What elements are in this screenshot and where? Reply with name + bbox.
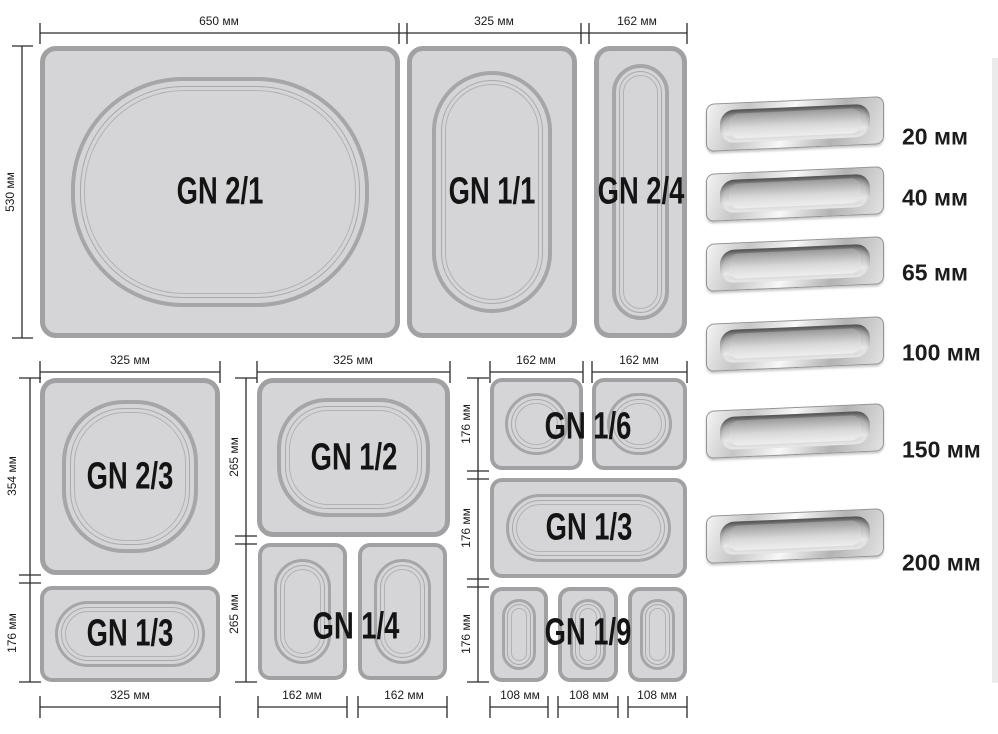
- pan-label-gn-2-3: GN 2/3: [87, 455, 174, 498]
- pan-rim: [706, 508, 884, 564]
- pan-label-gn-1-6: GN 1/6: [545, 406, 632, 449]
- pan-rim: [706, 96, 884, 152]
- pan-label-gn-1-2: GN 1/2: [310, 436, 397, 479]
- dim-label-354mm: 354 мм: [5, 456, 19, 496]
- depth-label-40mm: 40 мм: [902, 185, 968, 212]
- pan-label-gn-1-3: GN 1/3: [87, 613, 174, 656]
- pan-gn-1-3-left: GN 1/3: [40, 586, 220, 682]
- pan-opening-floor: [729, 248, 861, 279]
- pan-gn-2-4: GN 2/4: [594, 46, 687, 338]
- pan-opening: [720, 411, 870, 451]
- dim-label-530mm: 530 мм: [3, 172, 17, 212]
- pan-rim: [706, 236, 884, 292]
- pan-opening: [720, 244, 870, 284]
- pan-gn-1-1: GN 1/1: [407, 46, 577, 338]
- depth-label-150mm: 150 мм: [902, 437, 981, 464]
- pan-opening: [720, 174, 870, 214]
- pan-label-gn-1-4: GN 1/4: [313, 606, 400, 649]
- pan-opening-floor: [729, 108, 861, 139]
- photo-pan-100mm: [706, 320, 884, 403]
- depth-label-20mm: 20 мм: [902, 124, 968, 151]
- pan-rim: [706, 316, 884, 372]
- pan-label-gn-2-1: GN 2/1: [177, 171, 264, 214]
- pan-opening: [720, 516, 870, 556]
- pan-opening-floor: [729, 328, 861, 359]
- depth-label-100mm: 100 мм: [902, 340, 981, 367]
- pan-gn-2-1: GN 2/1: [40, 46, 400, 338]
- pan-label-gn-1-1: GN 1/1: [449, 171, 536, 214]
- dim-label-325mm-top: 325 мм: [474, 14, 514, 28]
- pan-gn-1-9-a: [490, 587, 548, 682]
- dim-label-108mm-b: 108 мм: [569, 688, 609, 702]
- depth-label-200mm: 200 мм: [902, 550, 981, 577]
- pan-opening: [720, 104, 870, 144]
- dim-label-162mm-col2-a: 162 мм: [282, 688, 322, 702]
- dim-label-108mm-c: 108 мм: [637, 688, 677, 702]
- dim-label-162mm-col2-b: 162 мм: [384, 688, 424, 702]
- pan-gn-2-3: GN 2/3: [40, 378, 220, 575]
- photo-pan-200mm: [706, 512, 884, 627]
- dim-label-265mm-a: 265 мм: [227, 437, 241, 477]
- dim-label-325mm-col1-bottom: 325 мм: [110, 688, 150, 702]
- pan-inner-line: [511, 608, 527, 661]
- pan-inner-line: [649, 608, 666, 661]
- pan-gn-1-2: GN 1/2: [257, 378, 450, 537]
- gn-container-sizes-diagram: GN 2/1 GN 1/1 GN 2/4 GN 2/3 GN 1/3 GN 1/…: [0, 0, 998, 734]
- pan-body: [721, 553, 869, 629]
- dim-label-325mm-col1-top: 325 мм: [110, 353, 150, 367]
- pan-rim: [706, 166, 884, 222]
- pan-label-gn-2-4: GN 2/4: [597, 171, 684, 214]
- dim-label-162mm-top: 162 мм: [617, 14, 657, 28]
- pan-opening-floor: [729, 178, 861, 209]
- depth-label-65mm: 65 мм: [902, 260, 968, 287]
- pan-opening: [720, 324, 870, 364]
- photo-pan-150mm: [706, 407, 884, 506]
- photo-pan-40mm: [706, 170, 884, 229]
- pan-opening-floor: [729, 520, 861, 551]
- dim-label-176mm-col1: 176 мм: [5, 613, 19, 653]
- pan-gn-1-9-c: [628, 587, 687, 682]
- pan-gn-1-3-right: GN 1/3: [490, 478, 687, 578]
- dim-label-325mm-col2-top: 325 мм: [333, 353, 373, 367]
- dim-label-108mm-a: 108 мм: [500, 688, 540, 702]
- dim-label-176mm-col3-b: 176 мм: [459, 508, 473, 548]
- dim-label-176mm-col3-c: 176 мм: [459, 614, 473, 654]
- photo-pan-65mm: [706, 240, 884, 311]
- photo-backdrop-strip: [992, 58, 998, 683]
- pan-label-gn-1-9: GN 1/9: [545, 612, 632, 655]
- pan-opening-floor: [729, 415, 861, 446]
- dim-label-162mm-col3-b: 162 мм: [619, 353, 659, 367]
- dim-label-176mm-col3-a: 176 мм: [459, 404, 473, 444]
- pan-rim: [706, 403, 884, 459]
- dim-label-650mm: 650 мм: [199, 14, 239, 28]
- dim-label-265mm-b: 265 мм: [227, 594, 241, 634]
- pan-label-gn-1-3-wide: GN 1/3: [545, 507, 632, 550]
- photo-pan-20mm: [706, 100, 884, 151]
- dim-label-162mm-col3-a: 162 мм: [516, 353, 556, 367]
